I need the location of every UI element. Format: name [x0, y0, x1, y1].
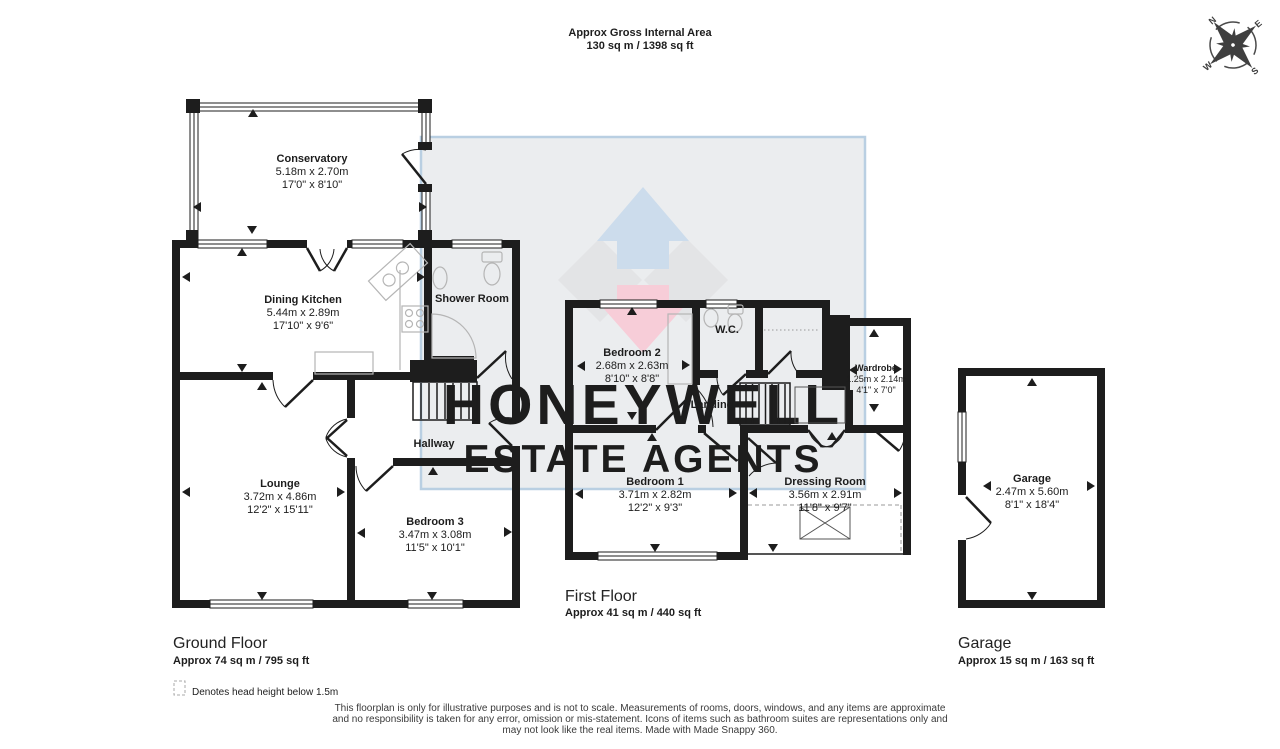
wall: [565, 425, 656, 433]
room-dim-metric: 2.68m x 2.63m: [596, 360, 669, 372]
watermark: HONEYWELL ESTATE AGENTS: [421, 137, 865, 489]
room-label: W.C.: [715, 324, 739, 336]
measure-arrow: [257, 592, 267, 600]
measure-arrow: [869, 404, 879, 412]
room-dim-imperial: 11'8" x 9'7": [798, 502, 851, 514]
wall: [958, 540, 966, 608]
door-arc: [966, 523, 991, 539]
wall: [903, 318, 911, 428]
wall: [958, 368, 966, 412]
wall: [695, 370, 718, 378]
measure-arrow: [504, 527, 512, 537]
page-title-area: 130 sq m / 1398 sq ft: [587, 40, 694, 52]
wall: [958, 600, 1105, 608]
room-label: Bedroom 3: [406, 516, 463, 528]
disclaimer-line: This floorplan is only for illustrative …: [335, 703, 946, 714]
sink-bowl: [394, 260, 411, 277]
wall: [418, 142, 432, 150]
room-label: Landing: [691, 399, 734, 411]
room-dim-metric: 1.25m x 2.14m: [846, 374, 906, 384]
wall: [698, 425, 706, 433]
measure-arrow: [869, 329, 879, 337]
room-dim-imperial: 12'2" x 15'11": [247, 504, 313, 516]
disclaimer-line: and no responsibility is taken for any e…: [332, 714, 947, 725]
measure-arrow: [894, 488, 902, 498]
compass-icon: N E S W: [1181, 0, 1280, 99]
measure-arrow: [575, 489, 583, 499]
room-label: Shower Room: [435, 293, 509, 305]
room-label: Dressing Room: [784, 476, 866, 488]
door-leaf: [366, 466, 393, 491]
measure-arrow: [1087, 481, 1095, 491]
wall: [172, 240, 180, 608]
wall: [796, 370, 822, 378]
garage-plan: Garage 2.47m x 5.60m 8'1" x 18'4": [958, 368, 1105, 608]
garage-caption: Garage: [958, 635, 1011, 652]
garage-labels: Garage 2.47m x 5.60m 8'1" x 18'4": [996, 473, 1069, 511]
measure-arrow: [1027, 592, 1037, 600]
door-opening: [307, 240, 347, 248]
wall: [1097, 368, 1105, 608]
room-dim-metric: 2.47m x 5.60m: [996, 486, 1069, 498]
wall: [755, 300, 763, 378]
wall: [845, 390, 853, 425]
door-leaf: [307, 248, 320, 271]
wall: [958, 368, 1105, 376]
disclaimer-line: may not look like the real items. Made w…: [502, 725, 777, 736]
measure-arrow: [894, 364, 902, 374]
measure-arrow: [768, 544, 778, 552]
wall: [424, 356, 474, 382]
first-floor-caption: First Floor: [565, 588, 638, 605]
measure-arrow: [650, 544, 660, 552]
wall: [186, 230, 198, 240]
measure-arrow: [247, 226, 257, 234]
wall: [172, 372, 273, 380]
wall: [186, 99, 200, 113]
kitchen-sink-icon: [368, 244, 427, 301]
wall: [740, 425, 808, 433]
floorplan-canvas: HONEYWELL ESTATE AGENTS Approx Gross Int…: [0, 0, 1280, 749]
measure-arrow: [182, 487, 190, 497]
room-dim-metric: 5.18m x 2.70m: [276, 166, 349, 178]
measure-arrow: [337, 487, 345, 497]
page-title: Approx Gross Internal Area: [568, 27, 712, 39]
floorplan-page: HONEYWELL ESTATE AGENTS Approx Gross Int…: [0, 0, 1280, 749]
room-dim-imperial: 11'5" x 10'1": [405, 542, 465, 554]
first-floor-area: Approx 41 sq m / 440 sq ft: [565, 607, 702, 619]
door-leaf: [285, 380, 313, 407]
room-dim-metric: 3.47m x 3.08m: [399, 529, 472, 541]
room-dim-metric: 3.56m x 2.91m: [789, 489, 862, 501]
sink-bowl: [381, 272, 398, 289]
wall: [512, 446, 520, 608]
hob-ring: [406, 321, 413, 328]
measure-arrow: [1027, 378, 1037, 386]
measure-arrow: [182, 272, 190, 282]
measure-arrow: [237, 248, 247, 256]
room-dim-metric: 3.72m x 4.86m: [244, 491, 317, 503]
measure-arrow: [427, 592, 437, 600]
legend: Denotes head height below 1.5m: [174, 681, 338, 698]
wall: [958, 462, 966, 495]
room-label: Lounge: [260, 478, 300, 490]
wall: [512, 240, 520, 418]
wall: [347, 458, 355, 600]
room-dim-imperial: 17'10" x 9'6": [273, 320, 333, 332]
wall: [830, 318, 910, 326]
measure-arrow: [257, 382, 267, 390]
room-dim-metric: 5.44m x 2.89m: [267, 307, 340, 319]
room-dim-imperial: 8'1" x 18'4": [1005, 499, 1059, 511]
ground-floor-caption: Ground Floor: [173, 635, 268, 652]
room-label: Conservatory: [277, 153, 349, 165]
legend-text: Denotes head height below 1.5m: [192, 687, 338, 698]
measure-arrow: [237, 364, 247, 372]
room-label: Dining Kitchen: [264, 294, 342, 306]
room-dim-imperial: 4'1" x 7'0": [856, 385, 895, 395]
door-leaf: [966, 497, 991, 523]
measure-arrow: [357, 528, 365, 538]
wall: [418, 230, 432, 240]
wall: [393, 458, 516, 466]
door-arc: [320, 249, 334, 271]
wall: [418, 184, 432, 192]
ground-floor-area: Approx 74 sq m / 795 sq ft: [173, 655, 310, 667]
room-label: Wardrobe: [855, 363, 897, 373]
head-height-icon: [174, 681, 185, 695]
hob-ring: [406, 310, 413, 317]
door-arc: [356, 466, 366, 491]
door-arc: [320, 249, 334, 271]
room-dim-imperial: 12'2" x 9'3": [628, 502, 682, 514]
room-dim-imperial: 8'10" x 8'8": [605, 373, 659, 385]
disclaimer: This floorplan is only for illustrative …: [332, 703, 947, 736]
garage-area: Approx 15 sq m / 163 sq ft: [958, 655, 1095, 667]
wall: [418, 99, 432, 113]
measure-arrow: [983, 481, 991, 491]
room-label: Hallway: [414, 438, 456, 450]
room-label: Bedroom 1: [626, 476, 683, 488]
wall: [740, 433, 748, 560]
wall: [347, 380, 355, 418]
stair-treads: [746, 384, 785, 424]
room-label: Garage: [1013, 473, 1051, 485]
wall: [746, 370, 768, 378]
room-dim-metric: 3.71m x 2.82m: [619, 489, 692, 501]
door-leaf: [334, 248, 347, 271]
room-label: Bedroom 2: [603, 347, 660, 359]
table-icon: [315, 352, 373, 374]
room-dim-imperial: 17'0" x 8'10": [282, 179, 342, 191]
compass-s: S: [1249, 65, 1260, 77]
wall: [903, 428, 911, 555]
door-arc: [273, 380, 285, 407]
header: Approx Gross Internal Area 130 sq m / 13…: [568, 27, 712, 52]
